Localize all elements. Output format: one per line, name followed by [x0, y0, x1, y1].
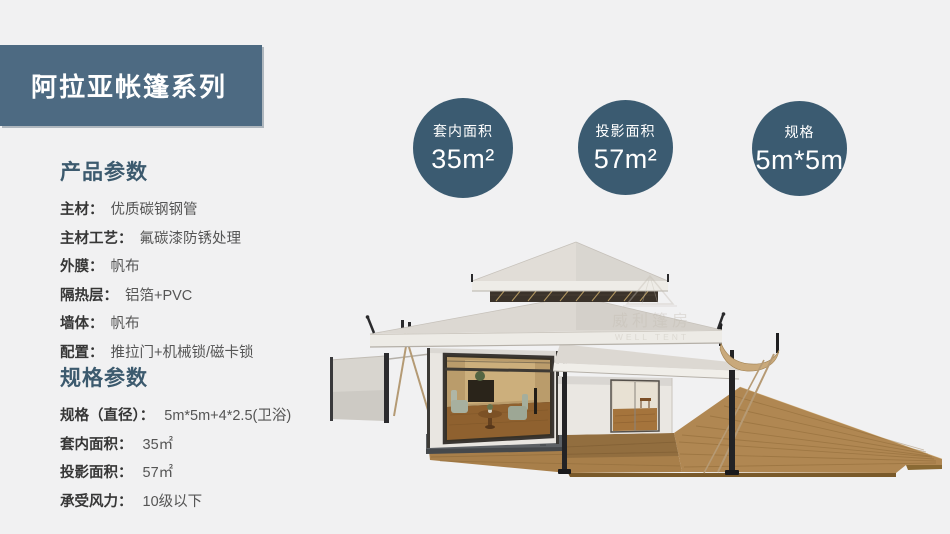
param-value: 10级以下: [143, 494, 203, 510]
badge-label: 规格: [785, 122, 815, 142]
param-row: 规格（直径）：5m*5m+4*2.5(卫浴): [60, 402, 291, 431]
badge-label: 投影面积: [596, 121, 656, 141]
param-label: 外膜：: [60, 259, 104, 275]
badge-value: 57m²: [594, 144, 658, 175]
param-value: 氟碳漆防锈处理: [140, 231, 242, 247]
roof-finial: [368, 318, 374, 333]
param-label: 配置：: [60, 345, 104, 361]
param-value: 推拉门+机械锁/磁卡锁: [111, 345, 254, 361]
param-label: 隔热层：: [60, 288, 118, 304]
param-row: 套内面积：35㎡: [60, 431, 291, 460]
param-label: 主材：: [60, 202, 104, 218]
annex-awning: [553, 344, 740, 379]
spec-sheet-page: 阿拉亚帐篷系列 产品参数 主材：优质碳钢钢管 主材工艺：氟碳漆防锈处理 外膜：帆…: [0, 0, 950, 534]
spec-params-heading: 规格参数: [60, 362, 291, 392]
param-value: 35㎡: [143, 437, 174, 453]
param-label: 套内面积：: [60, 437, 133, 453]
tent-illustration: 威利篷房 WELL TENT: [330, 230, 946, 530]
product-params-section: 产品参数 主材：优质碳钢钢管 主材工艺：氟碳漆防锈处理 外膜：帆布 隔热层：铝箔…: [60, 156, 254, 367]
param-label: 主材工艺：: [60, 231, 133, 247]
product-params-heading: 产品参数: [60, 156, 254, 186]
series-title: 阿拉亚帐篷系列: [31, 67, 227, 104]
param-row: 外膜：帆布: [60, 253, 254, 282]
watermark-cn: 威利篷房: [612, 311, 692, 330]
badge-label: 套内面积: [433, 121, 493, 141]
watermark-en: WELL TENT: [615, 332, 689, 342]
top-roof: [471, 242, 669, 302]
param-value: 57㎡: [143, 465, 174, 481]
param-value: 优质碳钢钢管: [111, 202, 198, 218]
badge-projection-area: 投影面积 57m²: [578, 100, 673, 195]
series-title-banner: 阿拉亚帐篷系列: [0, 45, 262, 126]
param-row: 投影面积：57㎡: [60, 459, 291, 488]
param-label: 墙体：: [60, 316, 104, 332]
badge-value: 35m²: [431, 144, 495, 175]
param-row: 隔热层：铝箔+PVC: [60, 282, 254, 311]
param-value: 帆布: [111, 259, 140, 275]
badge-size: 规格 5m*5m: [752, 101, 847, 196]
badge-inner-area: 套内面积 35m²: [413, 98, 513, 198]
param-row: 承受风力：10级以下: [60, 488, 291, 517]
side-flap: [330, 353, 430, 423]
badge-value: 5m*5m: [755, 145, 843, 176]
param-row: 主材：优质碳钢钢管: [60, 196, 254, 225]
param-value: 铝箔+PVC: [125, 288, 192, 304]
param-value: 帆布: [111, 316, 140, 332]
param-row: 墙体：帆布: [60, 310, 254, 339]
param-value: 5m*5m+4*2.5(卫浴): [164, 408, 291, 424]
spec-params-section: 规格参数 规格（直径）：5m*5m+4*2.5(卫浴) 套内面积：35㎡ 投影面…: [60, 362, 291, 516]
param-row: 主材工艺：氟碳漆防锈处理: [60, 225, 254, 254]
param-label: 承受风力：: [60, 494, 133, 510]
main-facade: [427, 348, 559, 448]
annex-wall: [558, 376, 672, 435]
param-label: 投影面积：: [60, 465, 133, 481]
param-label: 规格（直径）：: [60, 408, 154, 424]
